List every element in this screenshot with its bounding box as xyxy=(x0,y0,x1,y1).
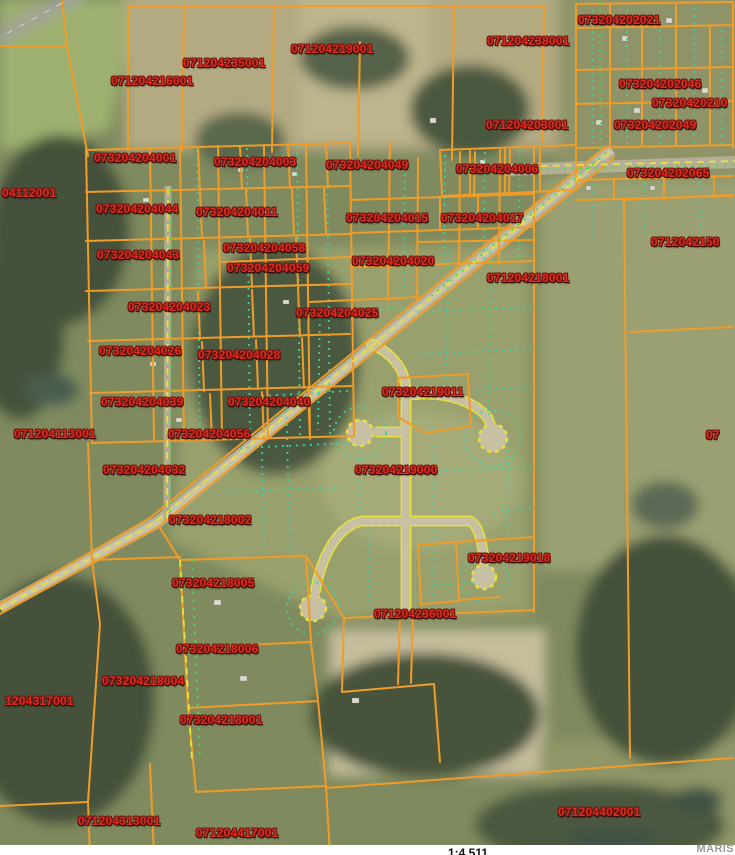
aerial-basemap xyxy=(0,0,735,855)
maris-watermark: MARIS xyxy=(697,845,734,855)
map-scale-text: 1:4,511 xyxy=(448,846,488,855)
map-viewport[interactable]: 0732042020210712042380010712042190010712… xyxy=(0,0,735,855)
scale-bar: 1:4,511 MARIS xyxy=(0,845,735,855)
